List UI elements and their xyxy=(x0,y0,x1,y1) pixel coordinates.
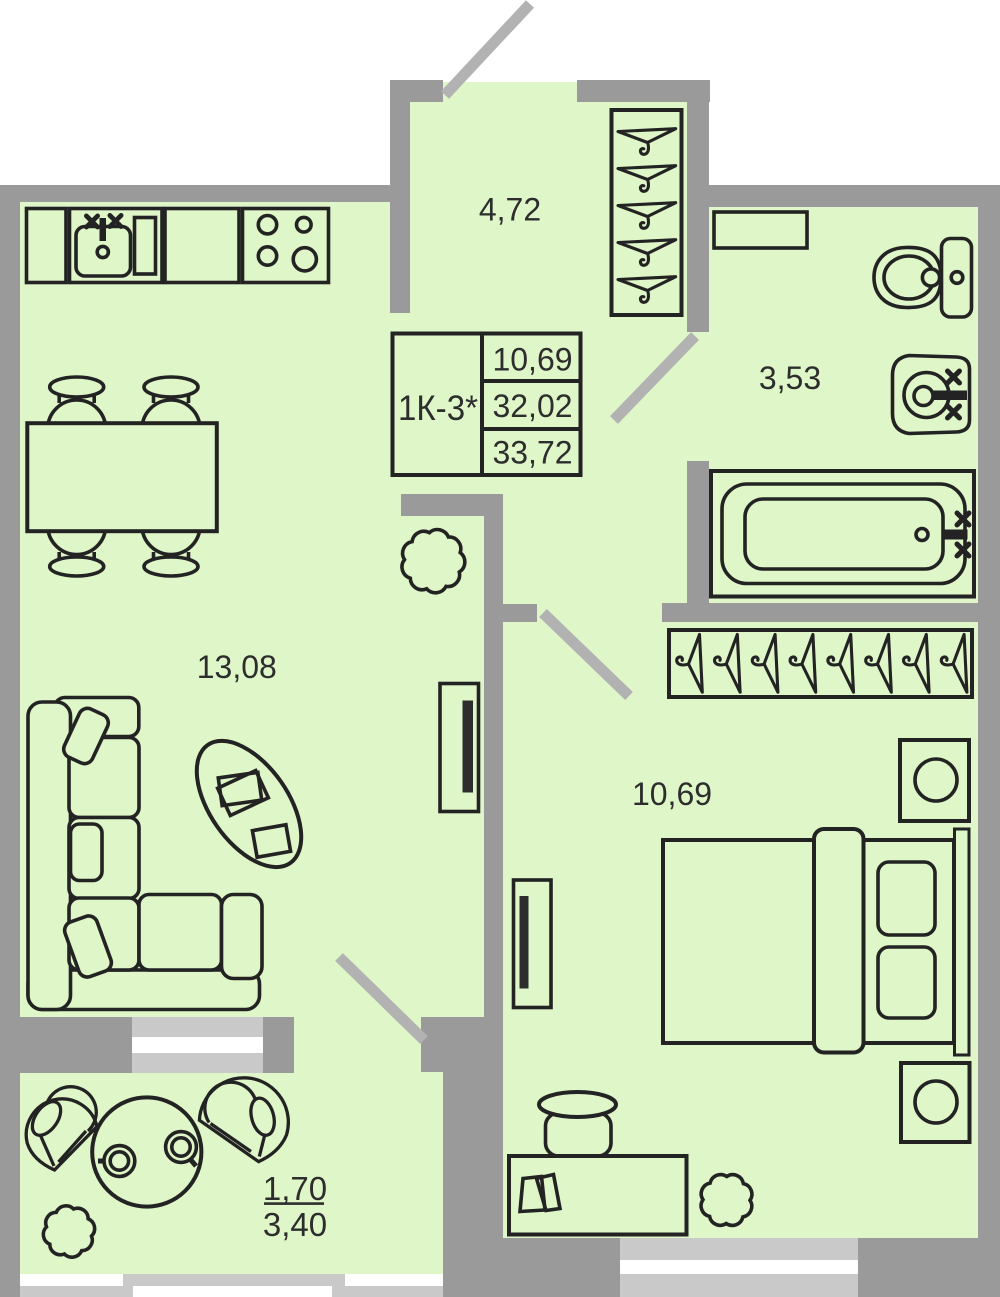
svg-text:13,08: 13,08 xyxy=(197,649,277,685)
svg-text:32,02: 32,02 xyxy=(492,388,572,424)
svg-text:33,72: 33,72 xyxy=(492,435,572,471)
svg-text:3,53: 3,53 xyxy=(759,360,821,396)
svg-text:10,69: 10,69 xyxy=(632,776,712,812)
svg-text:4,72: 4,72 xyxy=(479,192,541,228)
svg-text:3,40: 3,40 xyxy=(263,1206,327,1243)
svg-text:1К-3*: 1К-3* xyxy=(398,389,478,428)
svg-text:10,69: 10,69 xyxy=(492,342,572,378)
svg-text:1,70: 1,70 xyxy=(263,1170,327,1207)
